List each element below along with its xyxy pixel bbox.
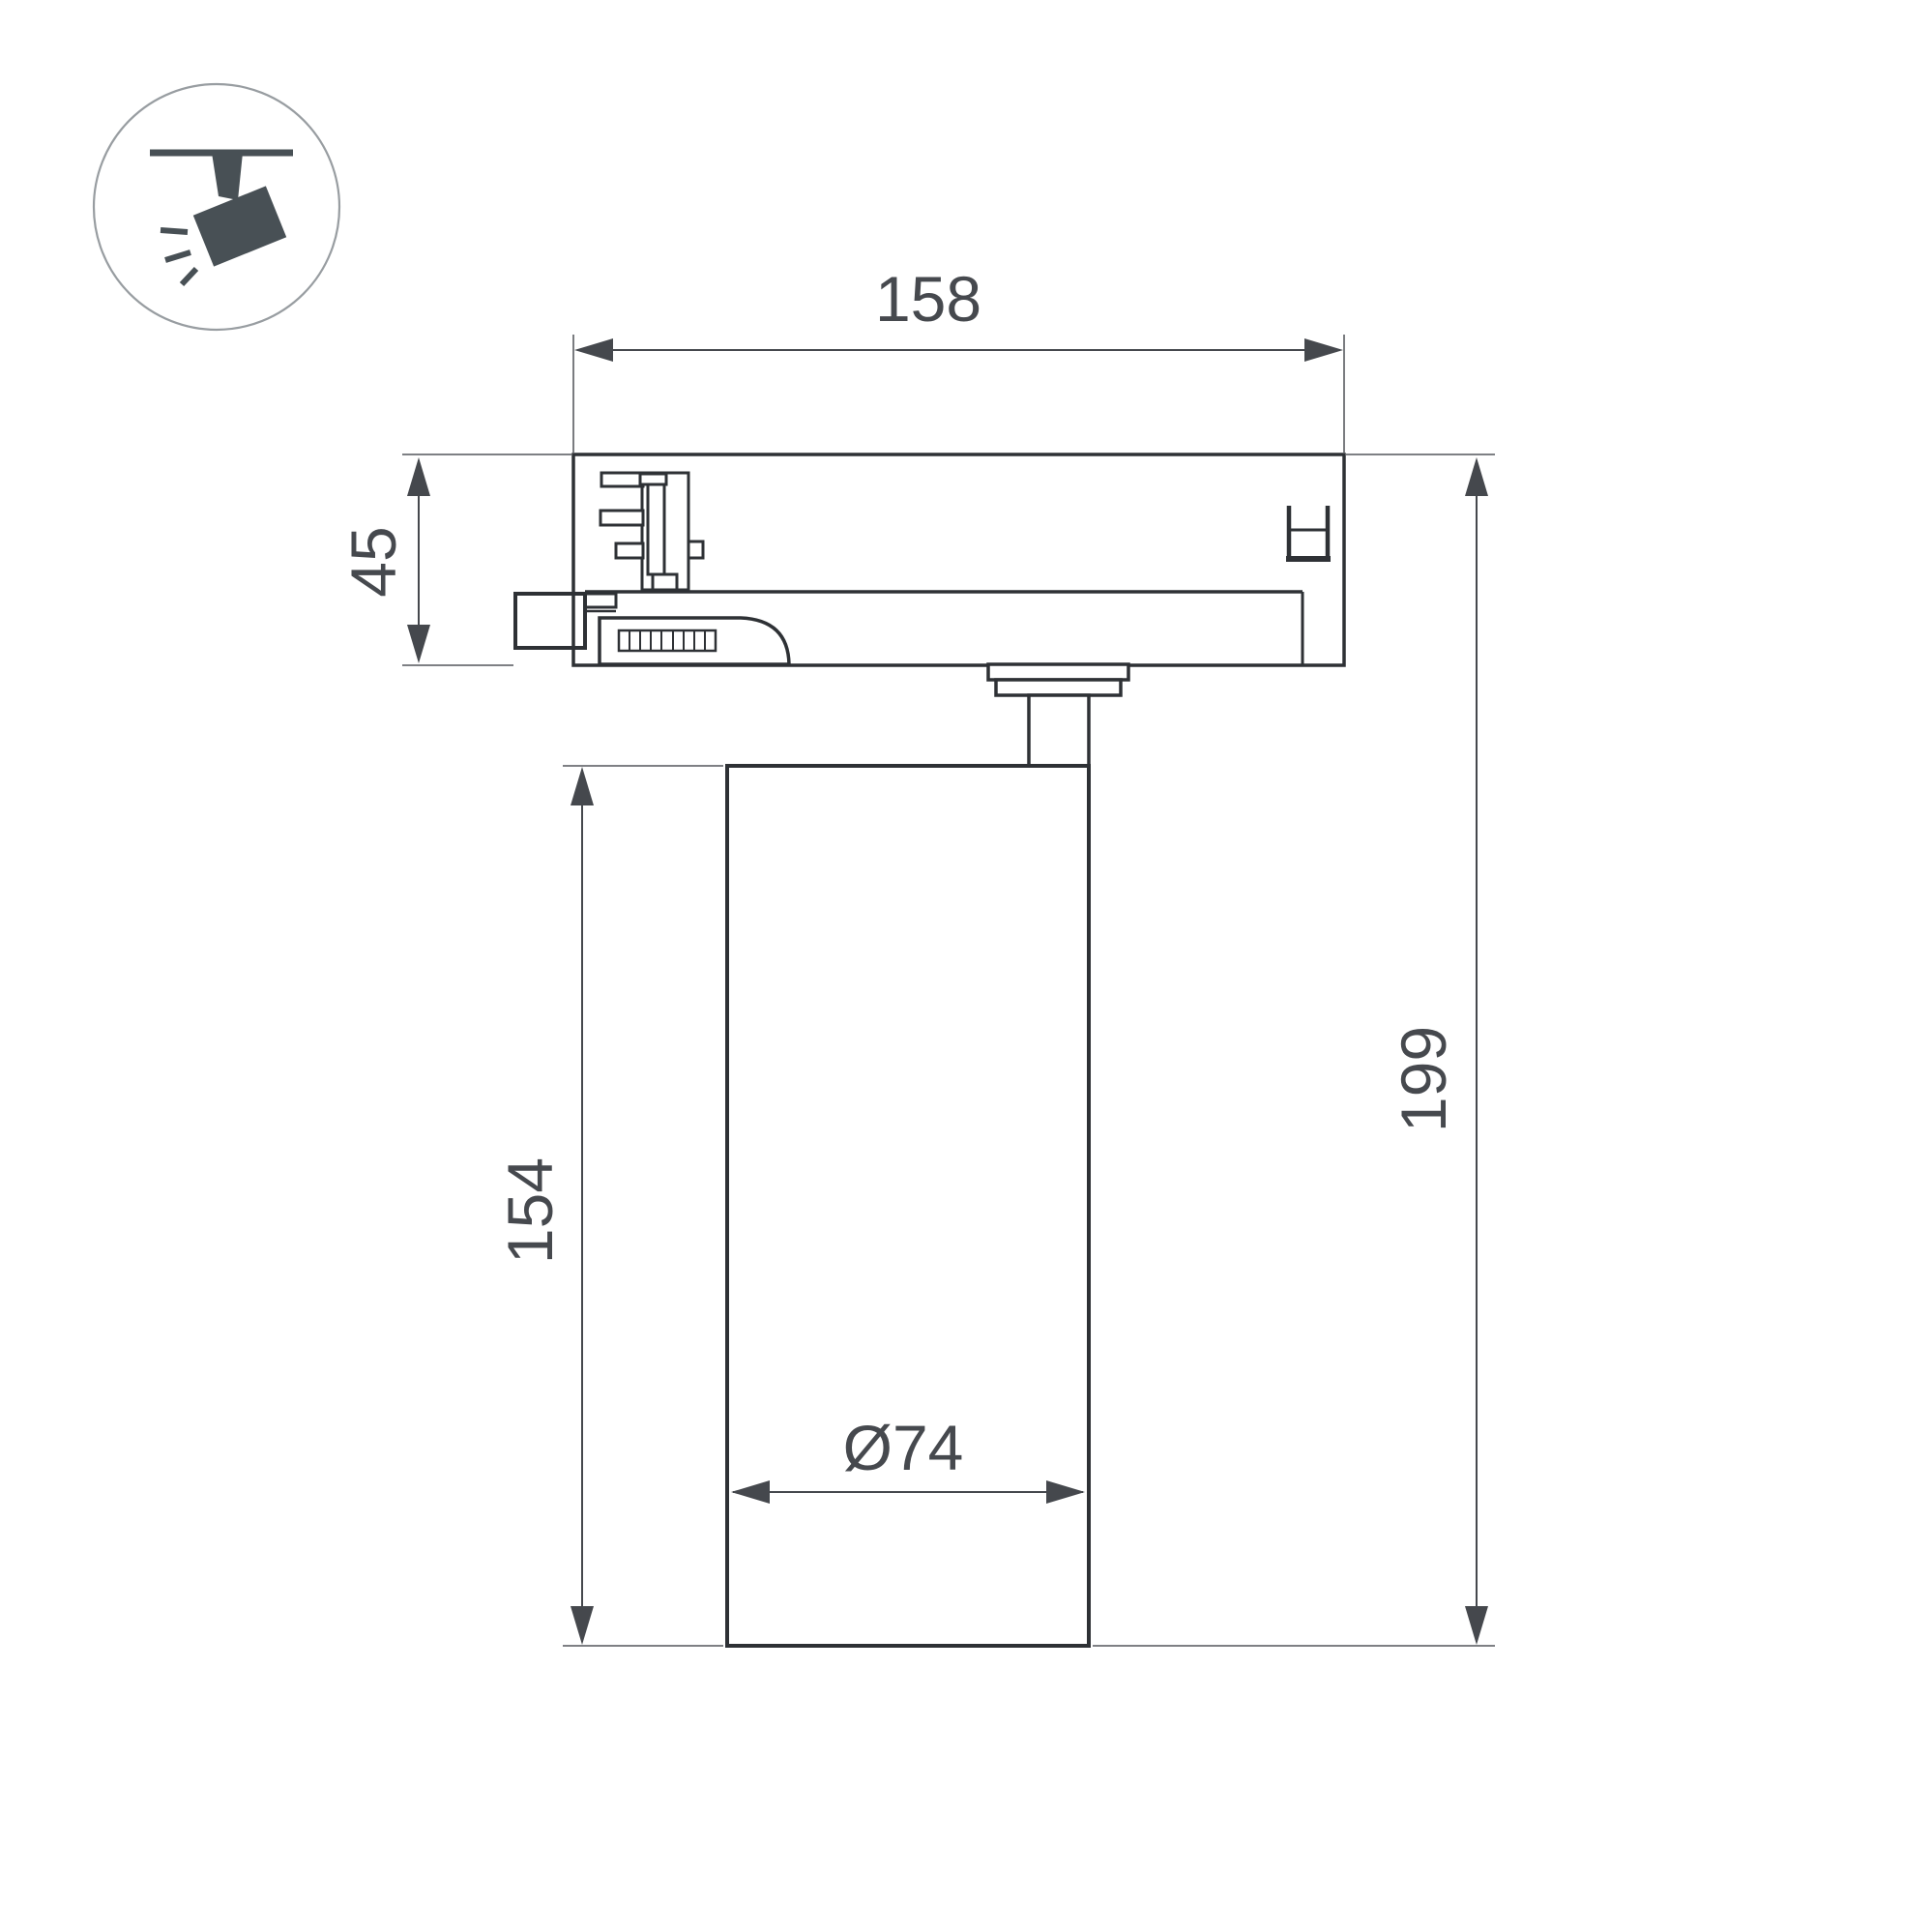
dim-label-body-diameter: Ø74 bbox=[843, 1412, 964, 1483]
arrowhead-down bbox=[407, 625, 430, 663]
arrowhead-left bbox=[574, 338, 613, 362]
arrowhead-up bbox=[571, 767, 594, 805]
arrowhead-up bbox=[1465, 457, 1488, 496]
arrowhead-up bbox=[407, 457, 430, 496]
arrowhead-right bbox=[1304, 338, 1343, 362]
contact-foot bbox=[653, 574, 677, 590]
pivot-flange-upper bbox=[988, 664, 1128, 680]
track-adapter bbox=[515, 454, 1344, 665]
dimension-adapter-height: 45 bbox=[337, 454, 571, 665]
product-icon bbox=[94, 84, 339, 330]
dimension-adapter-width: 158 bbox=[573, 263, 1344, 453]
icon-mount-stem bbox=[212, 153, 243, 200]
technical-drawing: 158 45 154 199 Ø74 bbox=[0, 0, 1932, 1932]
contact-pin bbox=[600, 511, 643, 525]
contact-tab bbox=[688, 542, 703, 558]
spotlight-icon-body bbox=[193, 186, 286, 266]
stem bbox=[1029, 695, 1089, 768]
grille-ribs bbox=[619, 630, 716, 651]
dim-label-adapter-width: 158 bbox=[875, 263, 981, 335]
dim-label-total-height: 199 bbox=[1388, 1026, 1459, 1132]
contact-pin bbox=[616, 543, 643, 558]
contact-pin bbox=[601, 473, 643, 486]
contact-post bbox=[648, 484, 664, 574]
drawing-canvas: 158 45 154 199 Ø74 bbox=[0, 0, 1932, 1932]
light-rays-icon bbox=[161, 230, 196, 284]
arrowhead-down bbox=[571, 1606, 594, 1645]
pivot-flange-lower bbox=[996, 680, 1121, 695]
contact-cap bbox=[640, 474, 666, 484]
pivot-stem bbox=[988, 664, 1128, 768]
dimension-body-height: 154 bbox=[494, 766, 723, 1646]
dim-label-adapter-height: 45 bbox=[337, 526, 409, 597]
dim-label-body-height: 154 bbox=[494, 1157, 566, 1264]
arrowhead-down bbox=[1465, 1606, 1488, 1645]
lamp-body-outline bbox=[727, 766, 1089, 1646]
